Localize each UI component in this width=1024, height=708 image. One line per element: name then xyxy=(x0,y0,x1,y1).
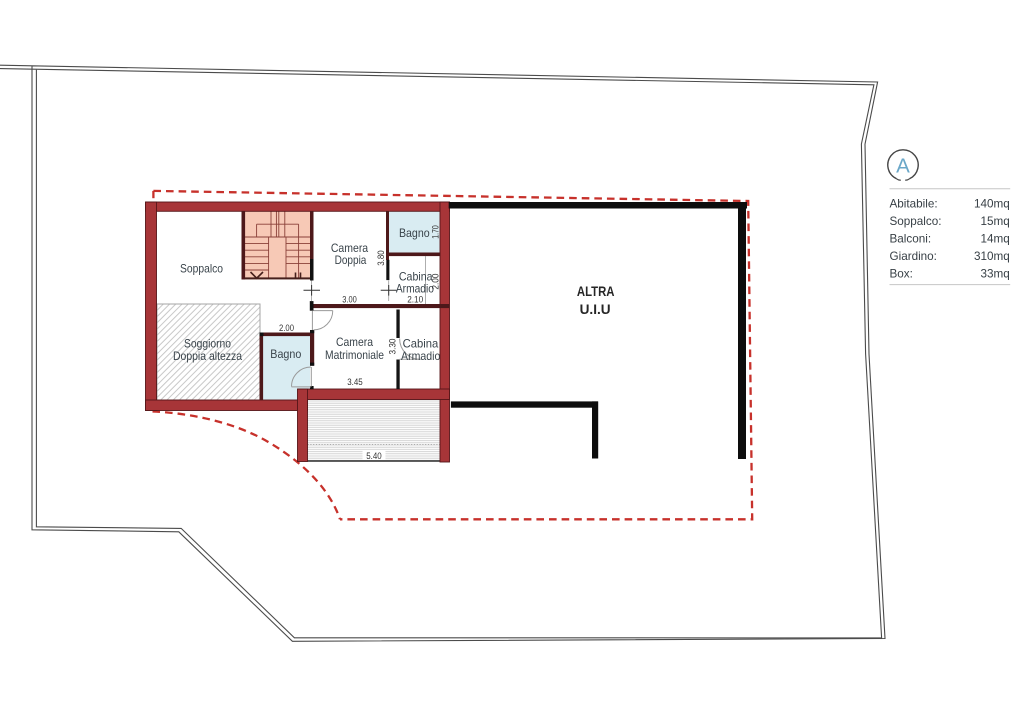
svg-text:2.00: 2.00 xyxy=(431,274,442,290)
svg-text:Box:: Box: xyxy=(890,267,913,280)
svg-text:Soppalco:: Soppalco: xyxy=(890,215,942,228)
svg-text:U.I.U: U.I.U xyxy=(580,302,611,317)
svg-text:3.00: 3.00 xyxy=(342,294,357,305)
svg-text:Bagno: Bagno xyxy=(270,347,301,361)
svg-text:3.80: 3.80 xyxy=(376,250,387,266)
svg-text:14mq: 14mq xyxy=(981,232,1010,245)
svg-text:33mq: 33mq xyxy=(981,267,1010,280)
svg-text:3.45: 3.45 xyxy=(347,377,363,388)
svg-text:Soppalco: Soppalco xyxy=(180,262,223,276)
svg-text:Camera: Camera xyxy=(336,335,373,349)
svg-text:A: A xyxy=(896,155,910,178)
svg-text:Armadio: Armadio xyxy=(396,281,434,295)
svg-text:2.10: 2.10 xyxy=(407,294,423,305)
svg-text:Balconi:: Balconi: xyxy=(890,232,932,245)
svg-text:ALTRA: ALTRA xyxy=(577,284,615,299)
svg-text:Matrimoniale: Matrimoniale xyxy=(325,348,384,362)
svg-text:Bagno: Bagno xyxy=(399,226,430,240)
svg-text:1.70: 1.70 xyxy=(430,225,441,239)
svg-text:Doppia: Doppia xyxy=(335,253,367,267)
svg-text:Armadio: Armadio xyxy=(401,349,441,363)
svg-text:310mq: 310mq xyxy=(974,250,1010,263)
svg-text:2.00: 2.00 xyxy=(279,323,294,334)
svg-text:Doppia altezza: Doppia altezza xyxy=(173,349,242,363)
svg-text:15mq: 15mq xyxy=(981,215,1010,228)
svg-text:3.30: 3.30 xyxy=(388,339,399,355)
svg-text:5.40: 5.40 xyxy=(366,451,382,462)
svg-text:140mq: 140mq xyxy=(974,198,1010,211)
svg-text:Abitabile:: Abitabile: xyxy=(890,198,938,211)
svg-text:Giardino:: Giardino: xyxy=(890,250,937,263)
